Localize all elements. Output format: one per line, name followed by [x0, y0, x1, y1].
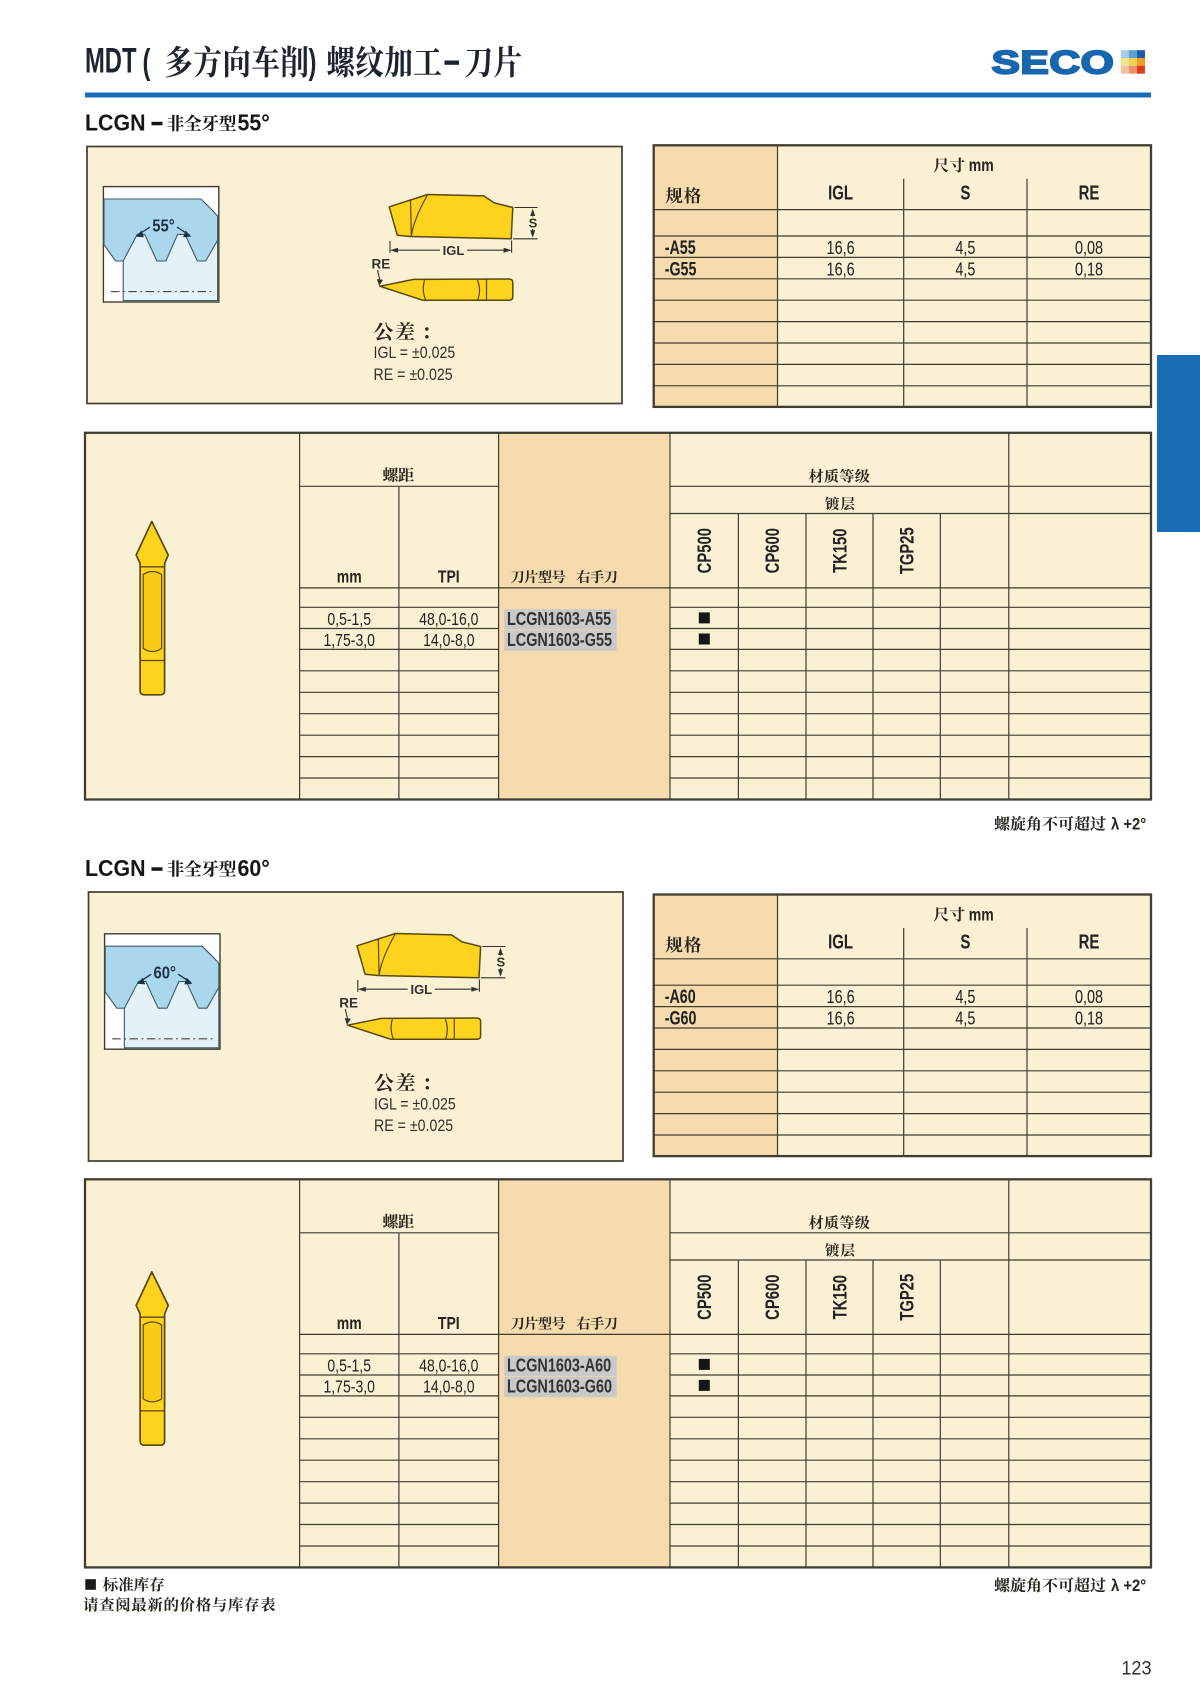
svg-text:RE = ±0.025: RE = ±0.025 — [374, 1117, 453, 1135]
svg-text:-A60: -A60 — [665, 986, 696, 1008]
svg-text:TPI: TPI — [438, 1313, 460, 1333]
svg-text:IGL: IGL — [443, 243, 465, 258]
svg-text:S: S — [496, 954, 505, 969]
svg-text:LCGN1603-A60: LCGN1603-A60 — [507, 1355, 611, 1376]
svg-text:60°: 60° — [153, 964, 175, 983]
svg-text:S: S — [960, 930, 970, 953]
svg-text:mm: mm — [969, 155, 994, 175]
svg-text:0,08: 0,08 — [1075, 237, 1103, 258]
svg-text:TGP25: TGP25 — [897, 1274, 918, 1321]
svg-text:LCGN: LCGN — [85, 855, 146, 881]
svg-text:0,5-1,5: 0,5-1,5 — [327, 1356, 371, 1376]
svg-text:-G55: -G55 — [665, 258, 697, 280]
svg-text:LCGN: LCGN — [85, 110, 146, 136]
svg-text:TK150: TK150 — [830, 1275, 851, 1319]
svg-text:-A55: -A55 — [665, 237, 696, 259]
svg-text:IGL: IGL — [410, 982, 432, 997]
svg-text:): ) — [309, 43, 317, 82]
svg-text:1,75-3,0: 1,75-3,0 — [323, 1377, 374, 1397]
svg-text:0,18: 0,18 — [1075, 1008, 1103, 1029]
svg-text:4,5: 4,5 — [955, 986, 975, 1007]
svg-text:14,0-8,0: 14,0-8,0 — [423, 631, 474, 651]
svg-text:RE: RE — [1079, 930, 1100, 953]
svg-text:S: S — [529, 215, 538, 230]
svg-text:RE: RE — [372, 257, 391, 272]
svg-text:4,5: 4,5 — [955, 237, 975, 258]
svg-text:mm: mm — [337, 1313, 362, 1333]
svg-text:SECO: SECO — [992, 45, 1115, 81]
svg-text:LCGN1603-A55: LCGN1603-A55 — [507, 608, 611, 629]
svg-text:16,6: 16,6 — [827, 237, 855, 258]
svg-text:λ +2°: λ +2° — [1111, 816, 1146, 834]
svg-text:48,0-16,0: 48,0-16,0 — [419, 609, 478, 629]
svg-text:IGL: IGL — [828, 930, 853, 953]
svg-text:TPI: TPI — [438, 567, 460, 587]
svg-text:LCGN1603-G60: LCGN1603-G60 — [507, 1376, 612, 1397]
svg-text:48,0-16,0: 48,0-16,0 — [419, 1356, 478, 1376]
svg-text:60°: 60° — [238, 855, 270, 881]
svg-text:-G60: -G60 — [665, 1007, 697, 1029]
svg-text:IGL: IGL — [828, 181, 853, 204]
svg-text:(: ( — [143, 43, 151, 82]
svg-text:CP600: CP600 — [762, 528, 783, 573]
svg-text:IGL = ±0.025: IGL = ±0.025 — [374, 1096, 456, 1114]
svg-text:CP500: CP500 — [694, 1275, 715, 1320]
svg-text:16,6: 16,6 — [827, 259, 855, 280]
svg-text:λ +2°: λ +2° — [1111, 1577, 1146, 1595]
svg-text:MDT: MDT — [85, 42, 137, 81]
svg-text:123: 123 — [1121, 1657, 1151, 1679]
svg-text:0,18: 0,18 — [1075, 259, 1103, 280]
svg-text:mm: mm — [969, 905, 994, 925]
svg-text:16,6: 16,6 — [827, 986, 855, 1007]
svg-text:RE: RE — [339, 996, 358, 1011]
svg-text:14,0-8,0: 14,0-8,0 — [423, 1377, 474, 1397]
svg-text:RE: RE — [1079, 181, 1100, 204]
svg-text:4,5: 4,5 — [955, 259, 975, 280]
svg-text:4,5: 4,5 — [955, 1008, 975, 1029]
svg-text:55°: 55° — [152, 216, 174, 235]
svg-text:IGL = ±0.025: IGL = ±0.025 — [374, 344, 456, 362]
svg-text:0,08: 0,08 — [1075, 986, 1103, 1007]
svg-text:RE = ±0.025: RE = ±0.025 — [374, 366, 453, 384]
svg-text:TK150: TK150 — [830, 528, 851, 572]
svg-text:55°: 55° — [238, 110, 270, 136]
svg-text:TGP25: TGP25 — [897, 527, 918, 574]
svg-text:mm: mm — [337, 567, 362, 587]
svg-text:CP500: CP500 — [694, 528, 715, 573]
svg-text:S: S — [960, 181, 970, 204]
svg-text:16,6: 16,6 — [827, 1008, 855, 1029]
svg-text:1,75-3,0: 1,75-3,0 — [323, 631, 374, 651]
svg-text:LCGN1603-G55: LCGN1603-G55 — [507, 629, 612, 650]
svg-text:CP600: CP600 — [762, 1275, 783, 1320]
svg-text:0,5-1,5: 0,5-1,5 — [327, 609, 371, 629]
